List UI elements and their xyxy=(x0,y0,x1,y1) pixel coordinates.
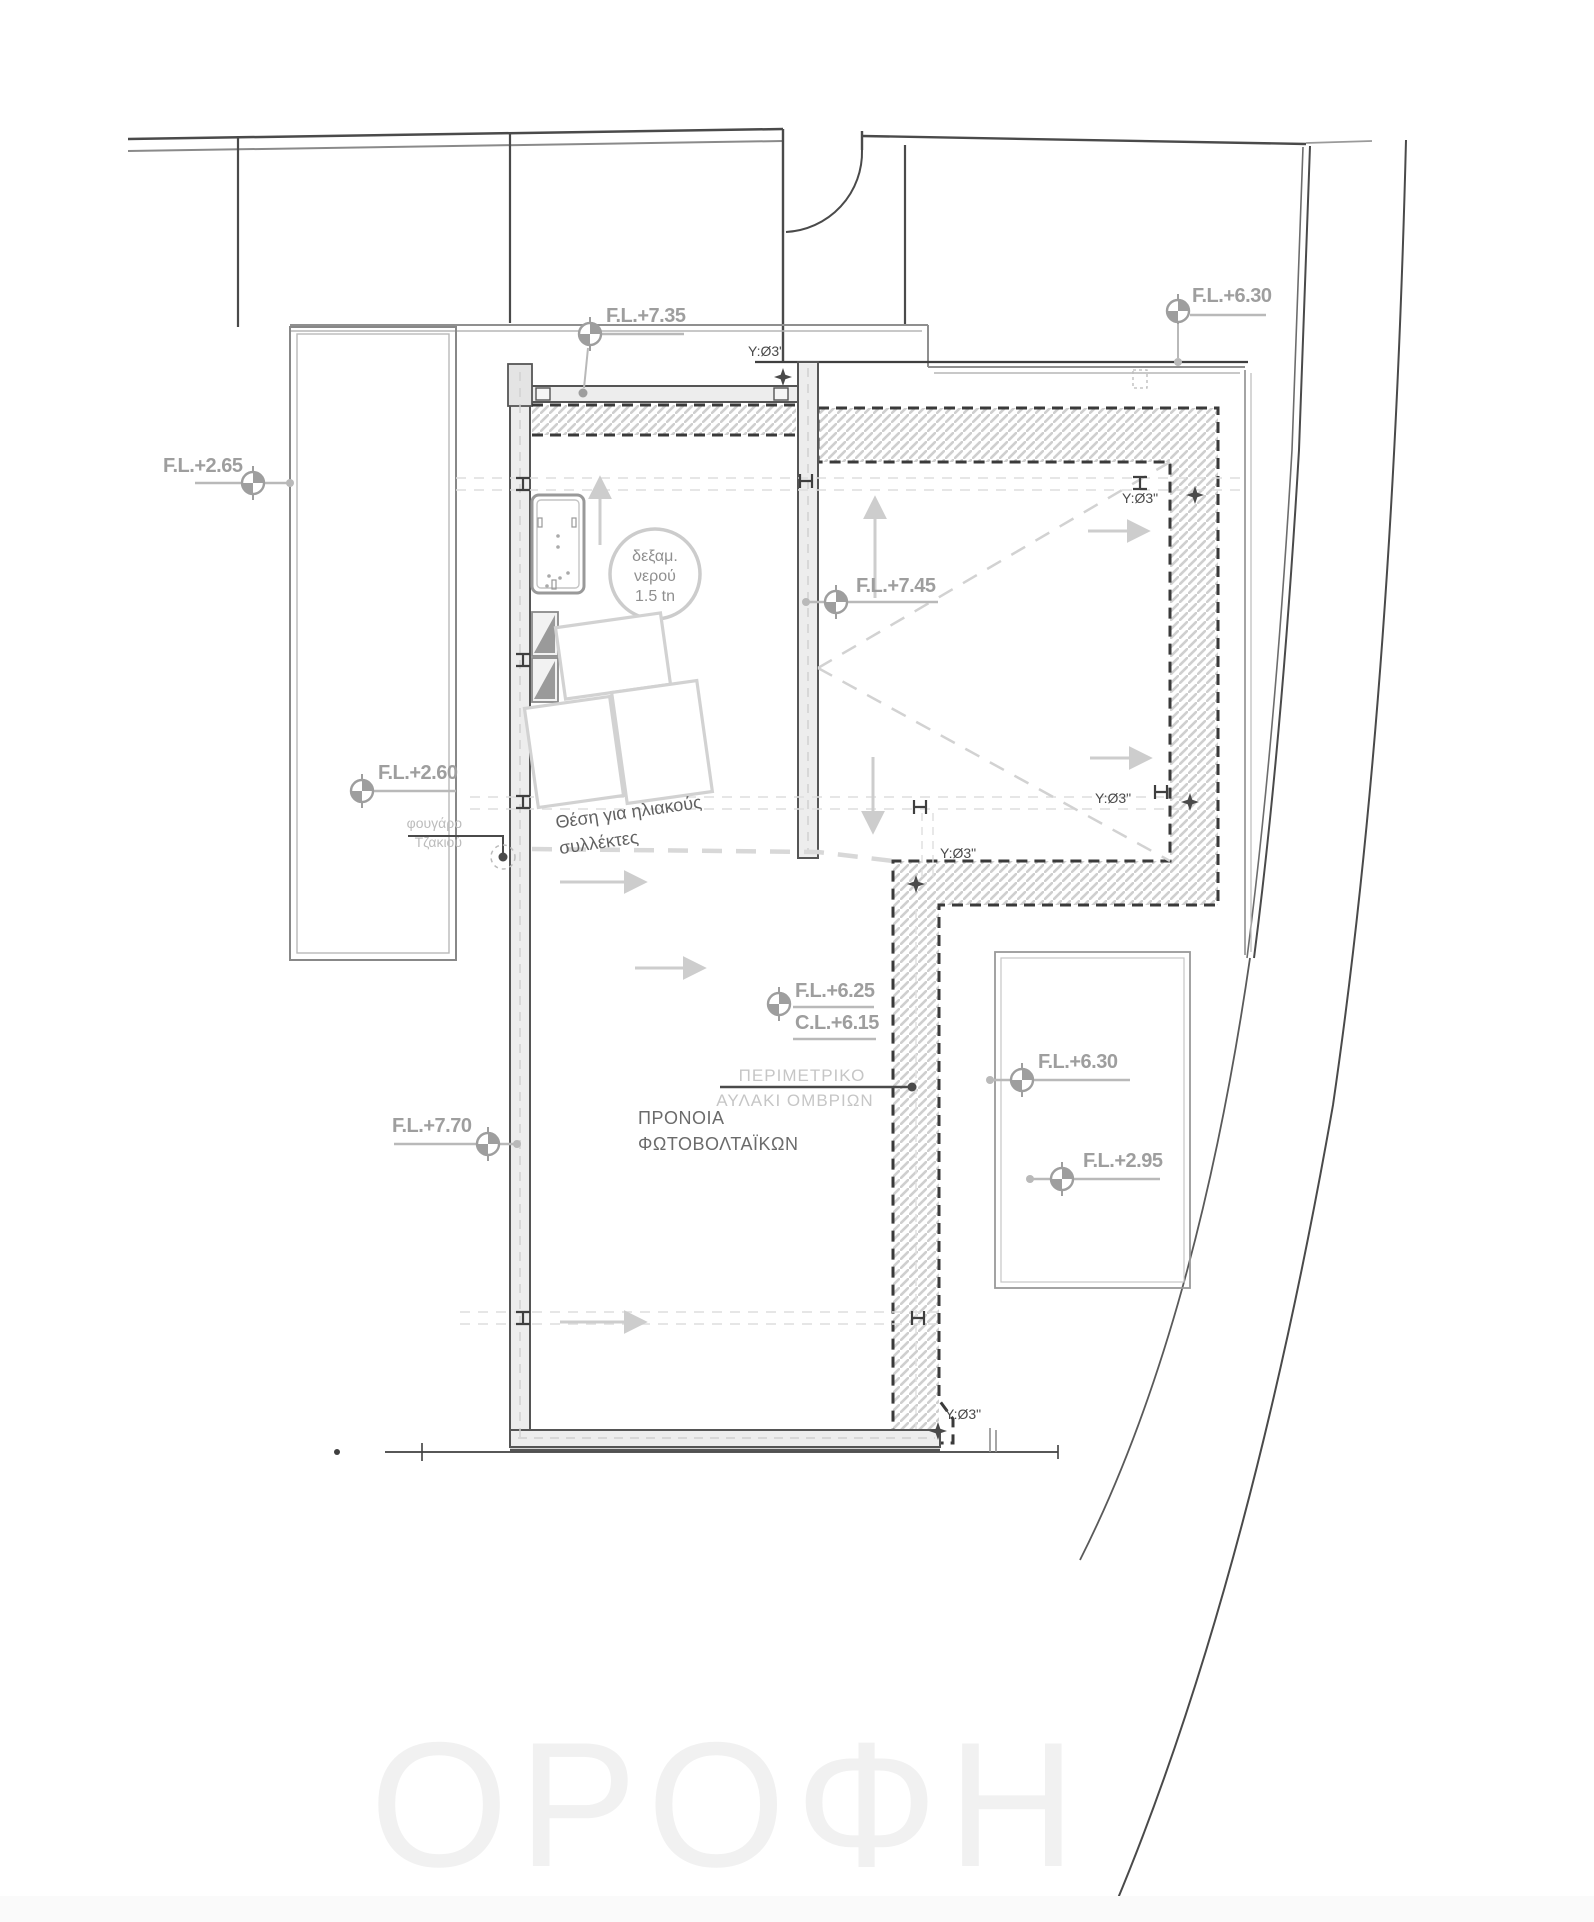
gate-swing xyxy=(783,129,862,362)
north-parapet-wall xyxy=(530,386,798,402)
level-label: F.L.+2.60 xyxy=(378,762,458,784)
drain-label-3: Y:Ø3" xyxy=(1095,790,1131,806)
level-label: F.L.+2.95 xyxy=(1083,1150,1163,1172)
gutter-note-line-2: ΑΥΛΑΚΙ ΟΜΒΡΙΩΝ xyxy=(716,1091,873,1110)
level-label-fl: F.L.+6.25 xyxy=(795,980,875,1002)
pv-note-line-1: ΠΡΟΝΟΙΑ xyxy=(638,1108,725,1128)
level-fl-735: F.L.+7.35 xyxy=(579,305,686,388)
level-label: F.L.+6.30 xyxy=(1038,1051,1118,1073)
photovoltaic-note: ΠΡΟΝΟΙΑ ΦΩΤΟΒΟΛΤΑΪΚΩΝ xyxy=(638,1108,798,1154)
level-fl-630-right: F.L.+6.30 xyxy=(986,1051,1130,1097)
water-tank: δεξαμ. νερού 1.5 tn xyxy=(610,529,700,619)
level-label: F.L.+6.30 xyxy=(1192,285,1272,307)
level-fl-625-cl-615: F.L.+6.25 C.L.+6.15 xyxy=(768,980,879,1039)
roof-plan-canvas: δεξαμ. νερού 1.5 tn Η.Π Η.Π Θέση για ηλι… xyxy=(0,0,1594,1922)
water-tank-label-1: δεξαμ. xyxy=(632,548,678,565)
water-tank-label-2: νερού xyxy=(634,568,676,585)
left-parcel xyxy=(290,327,456,960)
roof-plan-drawing: δεξαμ. νερού 1.5 tn Η.Π Η.Π Θέση για ηλι… xyxy=(0,0,1594,1922)
bottom-fade xyxy=(0,1896,1594,1922)
gutter-note: ΠΕΡΙΜΕΤΡΙΚΟ ΑΥΛΑΚΙ ΟΜΒΡΙΩΝ xyxy=(716,1066,916,1110)
level-label: F.L.+7.45 xyxy=(856,575,936,597)
level-fl-260: F.L.+2.60 xyxy=(351,762,458,808)
level-label: F.L.+7.70 xyxy=(392,1115,472,1137)
level-fl-630-top: F.L.+6.30 xyxy=(1167,285,1272,366)
north-gutter-band xyxy=(532,405,796,435)
level-fl-770: F.L.+7.70 xyxy=(392,1115,521,1161)
pv-note-line-2: ΦΩΤΟΒΟΛΤΑΪΚΩΝ xyxy=(638,1134,798,1154)
water-tank-label-3: 1.5 tn xyxy=(635,588,675,605)
drain-label-1: Y:Ø3" xyxy=(748,343,784,359)
skylight xyxy=(532,495,584,593)
level-fl-295: F.L.+2.95 xyxy=(1026,1150,1163,1196)
level-label: F.L.+7.35 xyxy=(606,305,686,327)
level-fl-745: F.L.+7.45 xyxy=(802,575,938,619)
drain-label-4: Y:Ø3" xyxy=(940,845,976,861)
level-label-cl: C.L.+6.15 xyxy=(795,1012,879,1034)
gutter-note-line-1: ΠΕΡΙΜΕΤΡΙΚΟ xyxy=(739,1066,866,1085)
level-label: F.L.+2.65 xyxy=(163,455,243,477)
chimney-label-1: φουγάρο xyxy=(407,815,463,831)
drain-label-2: Y:Ø3" xyxy=(1122,490,1158,506)
drain-label-5: Y:Ø3" xyxy=(945,1406,981,1422)
level-fl-265: F.L.+2.65 xyxy=(163,455,294,500)
chimney-flue: φουγάρο Τζακιού xyxy=(407,815,515,869)
solar-note-line-2: συλλέκτες xyxy=(558,827,640,858)
lower-right-parcel xyxy=(995,952,1190,1288)
drawing-title-watermark: ΟΡΟΦΗ xyxy=(370,1705,1086,1904)
